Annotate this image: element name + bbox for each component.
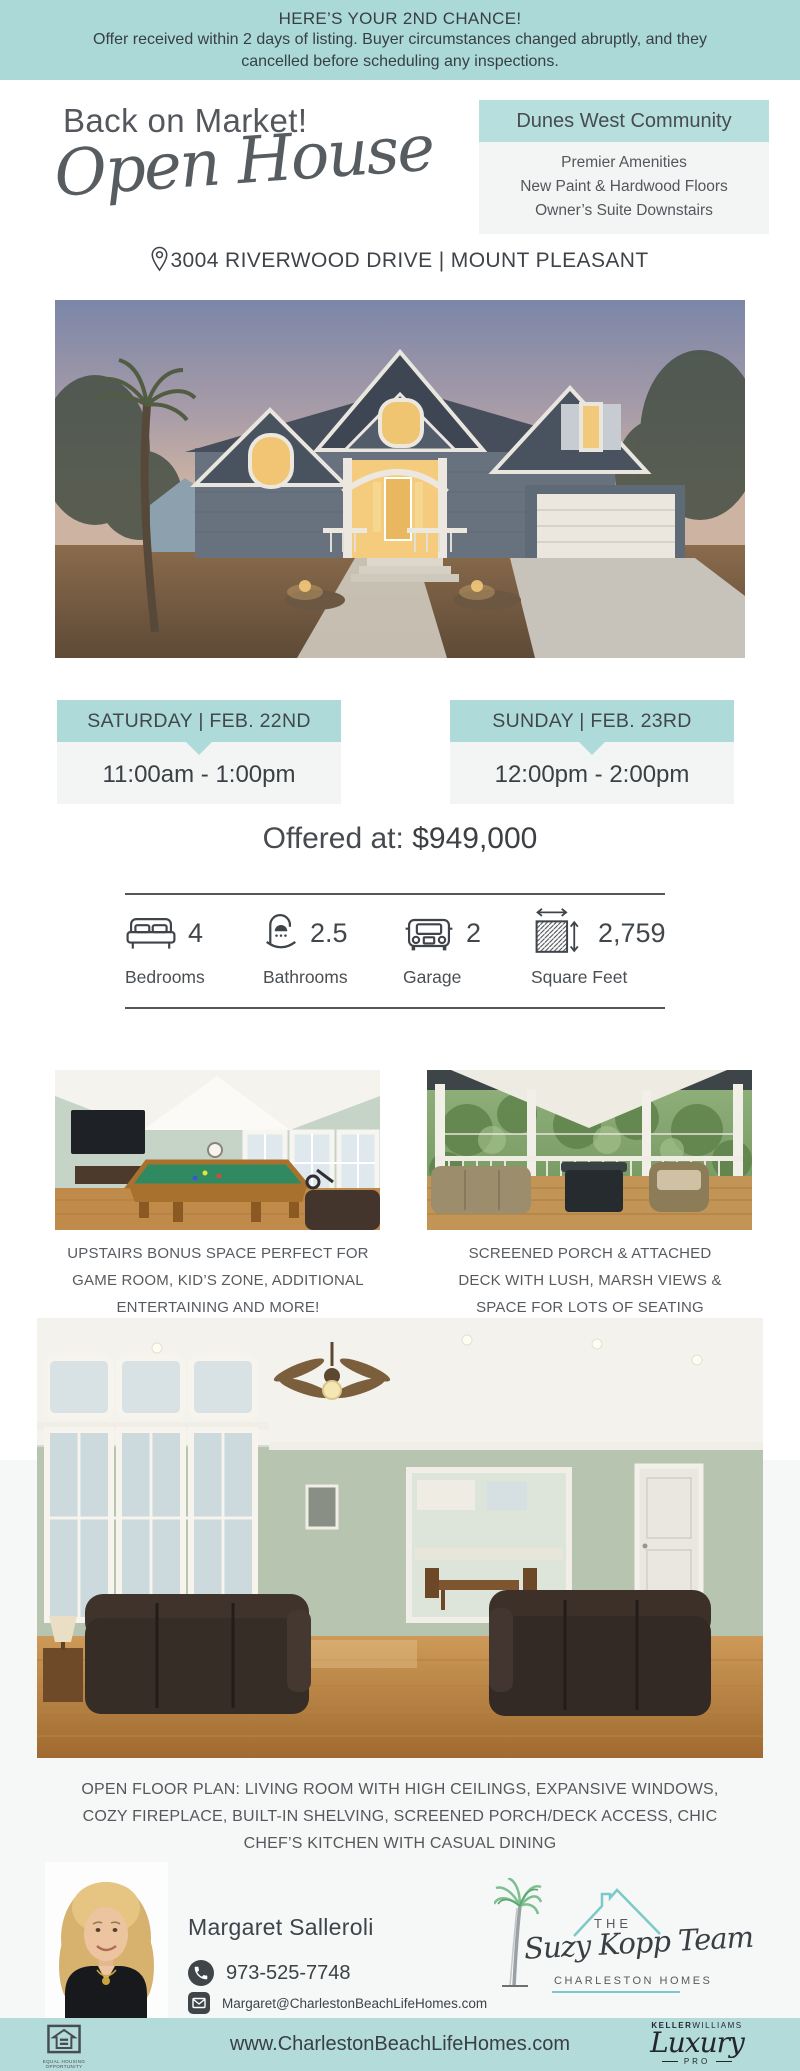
caption-line: SCREENED PORCH & ATTACHED (430, 1240, 750, 1267)
kw-pro-text: PRO (684, 2057, 710, 2066)
community-features: Premier Amenities New Paint & Hardwood F… (479, 142, 769, 234)
equal-housing-text-2: OPPORTUNITY (36, 2064, 92, 2069)
agent-name: Margaret Salleroli (188, 1914, 374, 1941)
stat-value: 2 (466, 918, 481, 949)
stat-bedrooms: 4 Bedrooms (125, 905, 205, 988)
top-banner: HERE’S YOUR 2ND CHANCE! Offer received w… (0, 0, 800, 80)
hero-photo-illustration (55, 300, 745, 658)
price-prefix: Offered at: (263, 822, 404, 855)
caption-line: UPSTAIRS BONUS SPACE PERFECT FOR (38, 1240, 398, 1267)
living-room-photo (37, 1318, 763, 1758)
divider-bottom (125, 1007, 665, 1009)
banner-line-1: Offer received within 2 days of listing.… (0, 29, 800, 51)
caption-line: DECK WITH LUSH, MARSH VIEWS & (430, 1267, 750, 1294)
caption-line: GAME ROOM, KID’S ZONE, ADDITIONAL (38, 1267, 398, 1294)
stat-value: 4 (188, 918, 203, 949)
agent-email[interactable]: Margaret@CharlestonBeachLifeHomes.com (222, 1996, 487, 2011)
caption-line: ENTERTAINING AND MORE! (38, 1294, 398, 1321)
open-house-flyer: HERE’S YOUR 2ND CHANCE! Offer received w… (0, 0, 800, 2071)
agent-phone-row: 973-525-7748 (188, 1960, 351, 1986)
kw-luxury-script: Luxury (632, 2030, 762, 2056)
footer: EQUAL HOUSING OPPORTUNITY www.Charleston… (0, 2018, 800, 2071)
stat-label: Bathrooms (263, 967, 348, 988)
stat-value: 2,759 (598, 918, 666, 949)
agent-email-row: Margaret@CharlestonBeachLifeHomes.com (188, 1992, 487, 2014)
price-amount: $949,000 (412, 822, 537, 855)
banner-title: HERE’S YOUR 2ND CHANCE! (0, 0, 800, 29)
bonus-room-photo (55, 1070, 380, 1230)
porch-caption: SCREENED PORCH & ATTACHED DECK WITH LUSH… (430, 1240, 750, 1321)
logo-team-name: Suzy Kopp Team (523, 1920, 744, 1965)
stat-label: Garage (403, 967, 481, 988)
logo-underline (552, 1991, 680, 1993)
session-day: SUNDAY | FEB. 23RD (450, 700, 734, 742)
stat-square-feet: 2,759 Square Feet (531, 905, 666, 988)
stat-garage: 2 Garage (403, 905, 481, 988)
stat-label: Bedrooms (125, 967, 205, 988)
bonus-room-photo-illustration (55, 1070, 380, 1230)
description-line: OPEN FLOOR PLAN: LIVING ROOM WITH HIGH C… (20, 1776, 780, 1803)
address-text: 3004 RIVERWOOD DRIVE | MOUNT PLEASANT (170, 249, 648, 272)
community-box: Dunes West Community Premier Amenities N… (479, 100, 769, 234)
property-description: OPEN FLOOR PLAN: LIVING ROOM WITH HIGH C… (20, 1776, 780, 1857)
logo-subtitle: CHARLESTON HOMES (554, 1975, 712, 1987)
caption-line: SPACE FOR LOTS OF SEATING (430, 1294, 750, 1321)
price-row: Offered at: $949,000 (0, 822, 800, 856)
living-room-photo-illustration (37, 1318, 763, 1758)
stat-value: 2.5 (310, 918, 348, 949)
stat-bathrooms: 2.5 Bathrooms (263, 905, 348, 988)
location-pin-icon (151, 246, 168, 272)
divider-top (125, 893, 665, 895)
open-house-session-saturday: SATURDAY | FEB. 22ND 11:00am - 1:00pm (57, 700, 341, 804)
bonus-room-caption: UPSTAIRS BONUS SPACE PERFECT FOR GAME RO… (38, 1240, 398, 1321)
bed-icon (125, 911, 177, 955)
community-feature: Owner’s Suite Downstairs (483, 199, 765, 223)
porch-photo-illustration (427, 1070, 752, 1230)
community-title: Dunes West Community (479, 100, 769, 142)
description-line: COZY FIREPLACE, BUILT-IN SHELVING, SCREE… (20, 1803, 780, 1830)
session-day: SATURDAY | FEB. 22ND (57, 700, 341, 742)
agent-phone[interactable]: 973-525-7748 (226, 1962, 351, 1985)
community-feature: New Paint & Hardwood Floors (483, 175, 765, 199)
hero-photo (55, 300, 745, 658)
description-line: CHEF’S KITCHEN WITH CASUAL DINING (20, 1830, 780, 1857)
keller-williams-luxury-logo: KELLERWILLIAMS Luxury PRO (632, 2021, 762, 2066)
open-house-session-sunday: SUNDAY | FEB. 23RD 12:00pm - 2:00pm (450, 700, 734, 804)
email-icon (188, 1992, 210, 2014)
bath-icon (263, 908, 299, 958)
stat-label: Square Feet (531, 967, 666, 988)
agent-photo-illustration (45, 1862, 168, 2018)
car-icon (403, 911, 455, 955)
area-icon (531, 907, 587, 959)
team-logo: THE Suzy Kopp Team CHARLESTON HOMES (490, 1876, 750, 1998)
phone-icon (188, 1960, 214, 1986)
community-feature: Premier Amenities (483, 151, 765, 175)
agent-photo (45, 1862, 168, 2018)
property-address: 3004 RIVERWOOD DRIVE | MOUNT PLEASANT (0, 246, 800, 273)
porch-photo (427, 1070, 752, 1230)
banner-line-2: cancelled before scheduling any inspecti… (0, 51, 800, 73)
